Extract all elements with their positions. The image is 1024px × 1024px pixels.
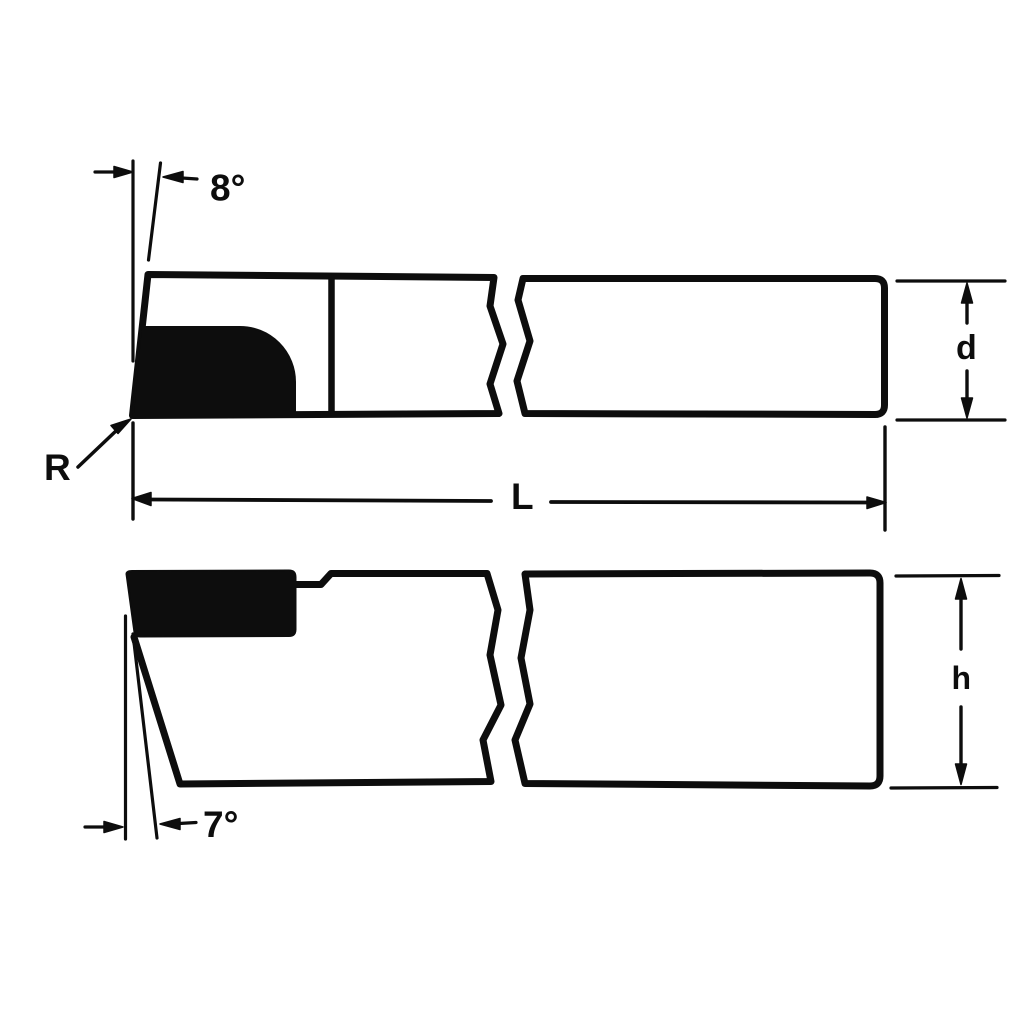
- svg-text:L: L: [511, 476, 534, 517]
- svg-text:7°: 7°: [203, 804, 238, 845]
- svg-text:8°: 8°: [210, 168, 245, 209]
- svg-text:R: R: [44, 447, 71, 488]
- svg-text:h: h: [952, 660, 972, 696]
- svg-text:d: d: [956, 329, 977, 367]
